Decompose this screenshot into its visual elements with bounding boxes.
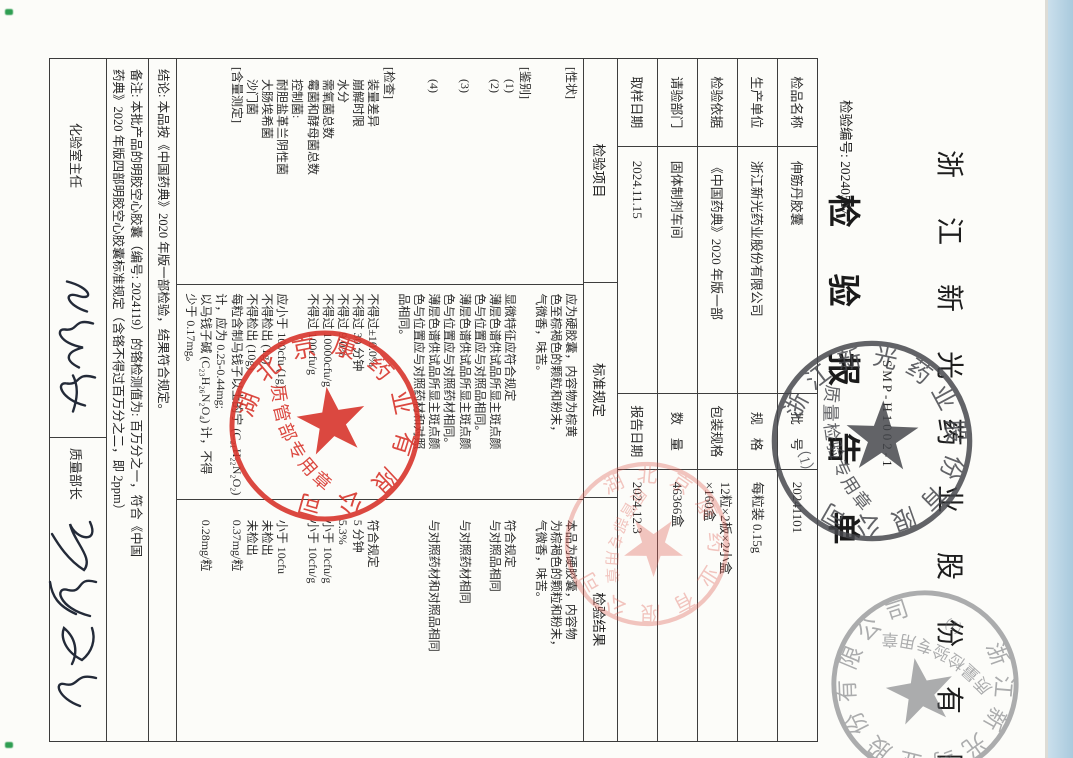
table-row: [性状] 应为硬胶囊，内容物为棕黄 色至棕褐色的颗粒和粉末， 气微香，味苦。 本… bbox=[532, 59, 578, 741]
value-request-dept: 固体制剂车间 bbox=[658, 147, 697, 394]
lab-director-label: 化验室主任 bbox=[67, 123, 86, 188]
item-cell: 沙门菌 bbox=[244, 59, 259, 283]
result-cell: 与对照药材相同 bbox=[441, 498, 471, 741]
item-cell: 耐胆盐革兰阴性菌 bbox=[274, 59, 289, 283]
scan-dot-bottom bbox=[5, 742, 13, 748]
table-row: (1) 显微特征应符合规定 符合规定 bbox=[502, 59, 517, 741]
table-row: (3) 薄层色谱供试品所显主斑点颜 色与位置应与对照药材相同。 与对照药材相同 bbox=[441, 59, 471, 741]
item-cell: 崩解时限 bbox=[350, 59, 365, 283]
table-row: (2) 薄层色谱供试品所显主斑点颜 色与位置应与对照品相同。 与对照品相同 bbox=[472, 59, 502, 741]
item-cell: 需氧菌总数 bbox=[320, 59, 335, 283]
result-cell: 符合规定 bbox=[365, 498, 380, 741]
scanned-report-viewport: 浙 江 新 光 药 业 股 份 有 限 公 司 SMP-H1002-1 检 验 … bbox=[0, 0, 1073, 758]
item-cell: (1) bbox=[502, 59, 517, 283]
item-cell: [鉴别] bbox=[517, 59, 532, 283]
conclusion-row: 结论: 本品按《中国药典》2020 年版一部检验，结果符合规定。 bbox=[148, 59, 176, 741]
value-sampling-date: 2024.11.15 bbox=[618, 147, 657, 394]
label-sampling-date: 取样日期 bbox=[618, 59, 657, 147]
value-manufacturer: 浙江新光药业股份有限公司 bbox=[738, 147, 777, 394]
table-row: [鉴别] bbox=[517, 59, 532, 741]
standard-cell bbox=[517, 283, 532, 497]
quality-director-cell: 质量部长 bbox=[50, 438, 106, 741]
info-row-dates: 取样日期 2024.11.15 报告日期 2024.12.3 bbox=[617, 59, 657, 741]
result-cell: 符合规定 bbox=[502, 498, 517, 741]
item-cell: 霉菌和酵母菌总数 bbox=[304, 59, 319, 283]
report-page: 浙 江 新 光 药 业 股 份 有 限 公 司 SMP-H1002-1 检 验 … bbox=[0, 0, 1073, 758]
item-cell: [检查] bbox=[380, 59, 395, 283]
result-cell: 5.3% bbox=[335, 498, 350, 741]
star-icon bbox=[621, 510, 692, 583]
label-test-basis: 检验依据 bbox=[698, 59, 737, 147]
lab-director-cell: 化验室主任 bbox=[50, 59, 106, 438]
label-packing-spec: 包装规格 bbox=[698, 394, 737, 470]
standard-cell: 薄层色谱供试品所显主斑点颜 色与位置应与对照品相同。 bbox=[472, 283, 502, 497]
item-cell: 控制菌: bbox=[289, 59, 304, 283]
remark-row: 备注: 本批产品的明胶空心胶囊（编号: 2024119）的铬检测值为: 百万分之… bbox=[106, 59, 148, 741]
result-cell: 5 分钟 bbox=[350, 498, 365, 741]
item-cell: [含量测定] bbox=[183, 59, 244, 283]
column-divider bbox=[177, 284, 583, 285]
item-cell: 大肠埃希菌 bbox=[259, 59, 274, 283]
header-test-item: 检验项目 bbox=[584, 59, 617, 283]
standard-cell: 显微特征应符合规定 bbox=[502, 283, 517, 497]
quality-director-signature bbox=[48, 510, 106, 720]
lab-director-signature bbox=[51, 269, 103, 424]
svg-text:（1）: （1） bbox=[935, 611, 972, 640]
svg-text:（1）: （1） bbox=[791, 440, 817, 480]
result-cell: 0.37mg/粒 0.28mg/粒 bbox=[183, 498, 244, 741]
item-cell: (2) bbox=[472, 59, 502, 283]
label-sample-name: 检品名称 bbox=[778, 59, 817, 147]
signature-row: 化验室主任 质量部长 bbox=[50, 59, 106, 741]
label-request-dept: 请验部门 bbox=[658, 59, 697, 147]
item-cell: [性状] bbox=[532, 59, 578, 283]
star-icon bbox=[843, 393, 929, 481]
report-number: 检验编号: 20240557 bbox=[837, 100, 857, 215]
item-cell: 装量差异 bbox=[365, 59, 380, 283]
value-test-basis: 《中国药典》2020 年版一部 bbox=[698, 147, 737, 394]
label-manufacturer: 生产单位 bbox=[738, 59, 777, 147]
item-cell: (3) bbox=[441, 59, 471, 283]
result-cell: 未检出 bbox=[244, 498, 259, 741]
standard-cell: 应为硬胶囊，内容物为棕黄 色至棕褐色的颗粒和粉末， 气微香，味苦。 bbox=[532, 283, 578, 497]
result-cell: 与对照品相同 bbox=[472, 498, 502, 741]
result-cell bbox=[380, 498, 395, 741]
result-cell bbox=[517, 498, 532, 741]
item-cell: (4) bbox=[396, 59, 442, 283]
main-table-header: 检验项目 标准规定 检验结果 bbox=[583, 59, 617, 741]
item-cell: 水分 bbox=[335, 59, 350, 283]
scanner-edge-strip bbox=[1048, 0, 1073, 758]
result-cell: 与对照药材和对照品相同 bbox=[396, 498, 442, 741]
quality-director-label: 质量部长 bbox=[67, 448, 86, 500]
scan-dot-top bbox=[5, 9, 13, 15]
